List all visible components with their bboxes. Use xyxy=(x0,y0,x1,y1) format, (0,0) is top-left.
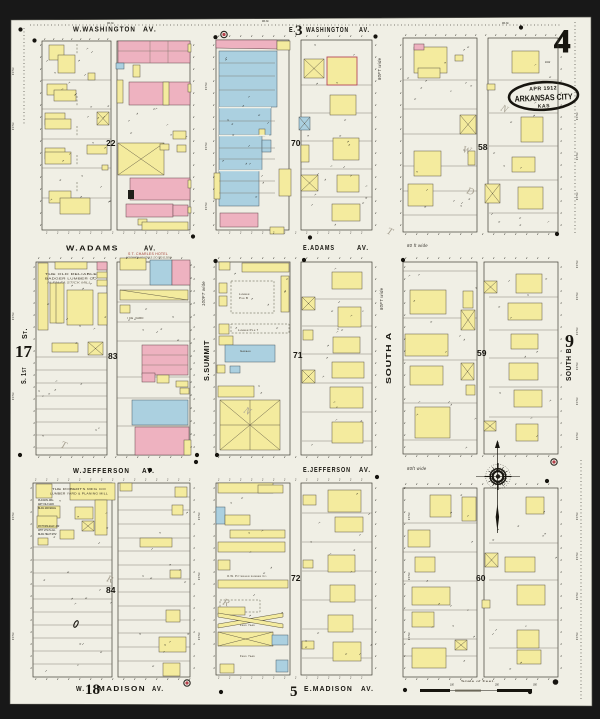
svg-text:8 FT.Cl.: 8 FT.Cl. xyxy=(199,632,201,640)
svg-text:8 FT.Cl.: 8 FT.Cl. xyxy=(577,112,579,120)
svg-text:BADGER LUMBER CO: BADGER LUMBER CO xyxy=(45,277,98,281)
svg-text:1912: 1912 xyxy=(545,62,551,64)
svg-text:W.WASHINGTON: W.WASHINGTON xyxy=(73,25,136,34)
svg-text:AV.: AV. xyxy=(359,25,370,34)
svg-text:LUMBER YARD & PLANING MILL: LUMBER YARD & PLANING MILL xyxy=(50,492,108,496)
svg-text:4: 4 xyxy=(554,24,571,60)
svg-text:60: 60 xyxy=(476,573,486,583)
svg-text:8 FT.Cl.: 8 FT.Cl. xyxy=(409,512,411,520)
svg-text:FR.Oc.: FR.Oc. xyxy=(262,21,270,23)
svg-text:AV.: AV. xyxy=(357,243,369,252)
svg-text:100FT wide: 100FT wide xyxy=(201,281,206,306)
svg-text:70: 70 xyxy=(291,138,301,148)
svg-text:8 FT.Cl.: 8 FT.Cl. xyxy=(13,312,15,320)
svg-text:200: 200 xyxy=(494,685,500,687)
svg-text:8 FT.Cl.: 8 FT.Cl. xyxy=(206,142,208,150)
svg-text:8 FT.Cl.: 8 FT.Cl. xyxy=(577,592,579,600)
svg-text:ST. CHARLES HOTEL: ST. CHARLES HOTEL xyxy=(128,252,168,256)
svg-text:W.: W. xyxy=(76,684,85,693)
svg-text:E.MADISON: E.MADISON xyxy=(304,684,353,693)
svg-text:AV.: AV. xyxy=(361,684,374,693)
svg-text:8 FT.Cl.: 8 FT.Cl. xyxy=(409,572,411,580)
svg-text:THE ROBERTS MFG CO: THE ROBERTS MFG CO xyxy=(52,487,107,491)
svg-text:8 FT.Cl.: 8 FT.Cl. xyxy=(577,192,579,200)
svg-text:ALFALFA STICK MILL: ALFALFA STICK MILL xyxy=(45,282,92,285)
svg-text:22: 22 xyxy=(106,138,116,148)
svg-text:8 FT.Cl.: 8 FT.Cl. xyxy=(13,122,15,130)
svg-text:MADISON: MADISON xyxy=(98,684,146,693)
svg-text:THE OLD RELIABLE: THE OLD RELIABLE xyxy=(45,272,97,276)
svg-text:8 FT.Cl.: 8 FT.Cl. xyxy=(577,327,579,335)
svg-text:FR.Oc.: FR.Oc. xyxy=(107,23,115,25)
svg-text:SOUTH A: SOUTH A xyxy=(384,332,393,384)
svg-text:72: 72 xyxy=(291,573,301,583)
svg-text:80FT wide: 80FT wide xyxy=(377,57,382,80)
svg-text:80ft wide: 80ft wide xyxy=(407,466,427,471)
svg-text:8 FT.Cl.: 8 FT.Cl. xyxy=(577,152,579,160)
svg-text:AV.: AV. xyxy=(152,684,164,693)
svg-text:8 FT.Cl.: 8 FT.Cl. xyxy=(199,512,201,520)
svg-text:8 FT.Cl.: 8 FT.Cl. xyxy=(577,552,579,560)
svg-text:83: 83 xyxy=(108,351,118,361)
svg-text:71: 71 xyxy=(293,350,303,360)
svg-text:80FT wide: 80FT wide xyxy=(379,287,384,310)
svg-text:8 FT.Cl.: 8 FT.Cl. xyxy=(199,572,201,580)
svg-text:8 FT.Cl.: 8 FT.Cl. xyxy=(13,512,15,520)
svg-text:8 FT.Cl.: 8 FT.Cl. xyxy=(577,260,579,268)
svg-text:BLDG MATERIAL: BLDG MATERIAL xyxy=(38,507,57,510)
svg-text:WHT LTS IN ALL: WHT LTS IN ALL xyxy=(38,529,56,532)
svg-text:WASHINGTON: WASHINGTON xyxy=(306,25,349,34)
svg-text:Scale of Feet.: Scale of Feet. xyxy=(461,679,495,683)
svg-text:FR.Oc.: FR.Oc. xyxy=(502,23,510,25)
svg-text:MOTORS ELEC 100: MOTORS ELEC 100 xyxy=(38,526,60,528)
svg-text:E.ADAMS: E.ADAMS xyxy=(303,243,335,252)
svg-text:5: 5 xyxy=(290,684,298,700)
svg-text:SOUTH B: SOUTH B xyxy=(564,348,573,381)
svg-text:AV.: AV. xyxy=(359,465,371,474)
svg-text:8 FT.Cl.: 8 FT.Cl. xyxy=(409,632,411,640)
svg-text:8 FT.Cl.: 8 FT.Cl. xyxy=(13,392,15,400)
svg-text:8 FT.Cl.: 8 FT.Cl. xyxy=(577,632,579,640)
svg-text:84: 84 xyxy=(106,585,116,595)
svg-text:59: 59 xyxy=(477,348,487,358)
svg-text:80 ft wide: 80 ft wide xyxy=(407,243,428,248)
svg-text:8 FT.Cl.: 8 FT.Cl. xyxy=(577,397,579,405)
svg-text:9: 9 xyxy=(565,331,574,351)
svg-text:DRY KILN AND: DRY KILN AND xyxy=(38,503,54,506)
svg-text:8 FT.Cl.: 8 FT.Cl. xyxy=(206,202,208,210)
svg-text:58: 58 xyxy=(478,142,488,152)
svg-text:W.ADAMS: W.ADAMS xyxy=(66,244,119,253)
svg-text:8 FT.Cl.: 8 FT.Cl. xyxy=(577,292,579,300)
svg-text:8 FT.Cl.: 8 FT.Cl. xyxy=(577,362,579,370)
svg-text:8 FT.Cl.: 8 FT.Cl. xyxy=(206,82,208,90)
svg-text:AV.: AV. xyxy=(143,25,157,34)
svg-text:PLANING MILL: PLANING MILL xyxy=(38,499,55,502)
svg-text:8 FT.Cl.: 8 FT.Cl. xyxy=(13,67,15,75)
svg-text:S.SUMMIT: S.SUMMIT xyxy=(202,340,211,381)
svg-text:KAS: KAS xyxy=(538,103,551,110)
svg-text:W.JEFFERSON: W.JEFFERSON xyxy=(73,466,130,475)
svg-text:8 FT.Cl.: 8 FT.Cl. xyxy=(577,512,579,520)
svg-text:E.JEFFERSON: E.JEFFERSON xyxy=(303,465,351,474)
svg-text:8 FT.Cl.: 8 FT.Cl. xyxy=(13,632,15,640)
svg-text:8 FT.Cl.: 8 FT.Cl. xyxy=(577,432,579,440)
svg-text:17: 17 xyxy=(15,342,33,361)
